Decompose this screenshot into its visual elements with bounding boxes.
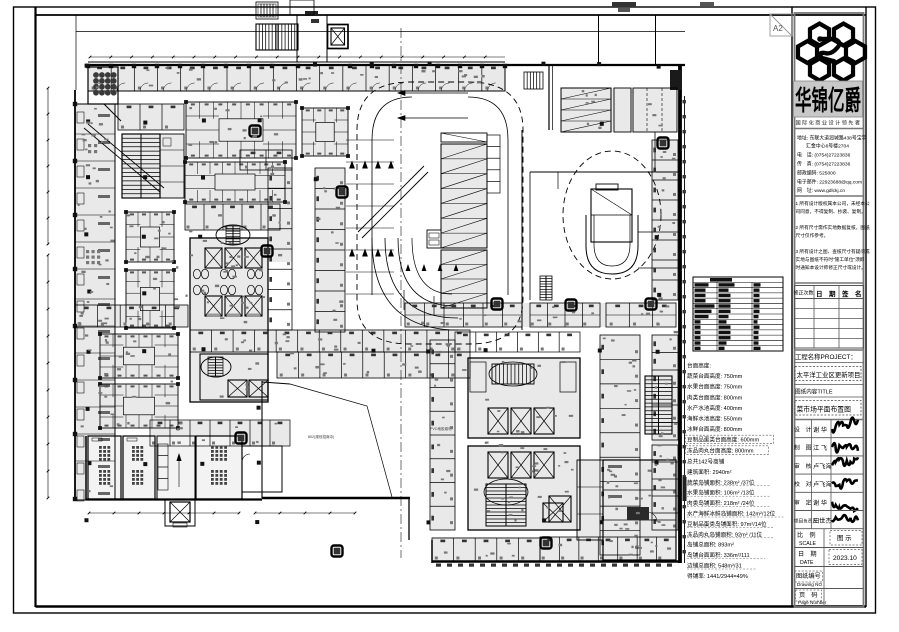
svg-text:海鲜水池高度: 550mm: 海鲜水池高度: 550mm — [687, 415, 743, 423]
svg-text:卢飞海: 卢飞海 — [813, 481, 832, 489]
svg-text:华锦亿爵: 华锦亿爵 — [795, 85, 861, 116]
svg-text:肉类岛铺面积: 218m² /24位: 肉类岛铺面积: 218m² /24位 — [687, 499, 755, 507]
svg-text:得铺率: 1441/2944=49%: 得铺率: 1441/2944=49% — [687, 572, 748, 580]
svg-text:蔬菜台面高度: 750mm: 蔬菜台面高度: 750mm — [687, 372, 743, 380]
svg-text:菜市场平面布置图: 菜市场平面布置图 — [797, 405, 852, 414]
svg-text:岛铺总面积: 893m²: 岛铺总面积: 893m² — [687, 541, 734, 549]
svg-text:Page Number: Page Number — [798, 600, 827, 605]
svg-text:工程名称PROJECT：: 工程名称PROJECT： — [795, 352, 857, 361]
svg-text:制 图: 制 图 — [794, 444, 812, 452]
svg-text:肉类台面高度: 800mm: 肉类台面高度: 800mm — [687, 393, 743, 401]
svg-text:边铺总面积: 548m²/31: 边铺总面积: 548m²/31 — [687, 562, 742, 570]
svg-text:冻品肉丸台面高度: 800mm: 冻品肉丸台面高度: 800mm — [687, 446, 754, 454]
svg-text:图纸编号: 图纸编号 — [796, 572, 821, 580]
svg-text:802(规划招商中): 802(规划招商中) — [308, 434, 334, 439]
svg-text:江 飞: 江 飞 — [813, 445, 827, 452]
svg-text:豆制品蛋类台面高度: 600mm: 豆制品蛋类台面高度: 600mm — [687, 436, 759, 444]
svg-text:蔬菜岛铺面积: 238m² /37位: 蔬菜岛铺面积: 238m² /37位 — [687, 478, 755, 486]
svg-text:总共142号商铺: 总共142号商铺 — [687, 458, 725, 466]
svg-text:审 核: 审 核 — [794, 462, 812, 470]
svg-text:时通知本设计师修正尺寸或设计。: 时通知本设计师修正尺寸或设计。 — [796, 264, 866, 271]
svg-text:DATE: DATE — [800, 560, 814, 566]
svg-text:卢飞海: 卢飞海 — [813, 462, 832, 470]
svg-text:太平洋工业区更新项目: 太平洋工业区更新项目 — [797, 370, 861, 379]
svg-text:电 话: (0754)27223836: 电 话: (0754)27223836 — [797, 152, 851, 159]
svg-text:邮政编码: 525000: 邮政编码: 525000 — [797, 170, 836, 177]
svg-text:田世杰: 田世杰 — [813, 517, 832, 525]
svg-text:冻品肉丸岛铺面积: 92m² /11位: 冻品肉丸岛铺面积: 92m² /11位 — [687, 530, 763, 538]
svg-text:Drawing NO: Drawing NO — [797, 582, 822, 587]
svg-text:谢 华: 谢 华 — [813, 499, 827, 507]
svg-text:2 所有尺寸需作实地数据复核，图纸: 2 所有尺寸需作实地数据复核，图纸 — [796, 224, 871, 231]
svg-text:水产海鲜冰鲜岛铺面积: 142m²/12位: 水产海鲜冰鲜岛铺面积: 142m²/12位 — [687, 510, 776, 518]
svg-text:台面高度:: 台面高度: — [687, 362, 711, 370]
svg-text:司同意，不得复制、抄袭、复制。: 司同意，不得复制、抄袭、复制。 — [796, 208, 866, 215]
svg-text:SCALE: SCALE — [799, 541, 817, 547]
svg-text:电子邮件: 22923688@qq.com: 电子邮件: 22923688@qq.com — [797, 179, 862, 186]
svg-text:签 名: 签 名 — [841, 289, 862, 298]
svg-text:校 对: 校 对 — [794, 480, 812, 488]
svg-text:谢 华: 谢 华 — [813, 426, 827, 434]
svg-text:网 址: www.gdlckj.cn: 网 址: www.gdlckj.cn — [797, 187, 845, 194]
svg-text:尺寸仅作参考。: 尺寸仅作参考。 — [796, 232, 829, 239]
svg-text:建筑面积: 2940m²: 建筑面积: 2940m² — [687, 468, 732, 476]
svg-text:实地与图纸不符时"施工单位"须即: 实地与图纸不符时"施工单位"须即 — [796, 256, 865, 263]
svg-text:地址: 东联大道润城路438号宝宇: 地址: 东联大道润城路438号宝宇 — [797, 135, 867, 142]
svg-text:设 计: 设 计 — [794, 426, 812, 434]
svg-text:2023.10: 2023.10 — [833, 555, 857, 562]
svg-text:比 例: 比 例 — [797, 531, 816, 539]
svg-text:豆制品蛋类岛铺面积: 97m²/14位: 豆制品蛋类岛铺面积: 97m²/14位 — [687, 520, 767, 528]
svg-text:岛铺台面面积: 336m²/111: 岛铺台面面积: 336m²/111 — [687, 551, 750, 559]
svg-text:A2: A2 — [773, 24, 783, 33]
svg-text:水果岛铺面积: 106m² /13位: 水果岛铺面积: 106m² /13位 — [687, 489, 755, 497]
svg-text:页 码: 页 码 — [799, 591, 818, 599]
svg-text:1 所有设计版权属本公司，未经本公: 1 所有设计版权属本公司，未经本公 — [796, 200, 871, 207]
svg-text:冰鲜台面高度: 800mm: 冰鲜台面高度: 800mm — [687, 425, 743, 433]
svg-text:3 所有设计之图、查核尺寸有疑问或: 3 所有设计之图、查核尺寸有疑问或 — [796, 248, 871, 255]
svg-text:传 真: (0754)27223836: 传 真: (0754)27223836 — [797, 161, 851, 168]
svg-text:水产水池高度: 400mm: 水产水池高度: 400mm — [687, 404, 743, 412]
svg-text:日 期: 日 期 — [798, 550, 817, 558]
svg-text:图纸内容TITLE: 图纸内容TITLE — [795, 388, 833, 396]
svg-text:汇金中心6号楼2704: 汇金中心6号楼2704 — [806, 143, 849, 150]
svg-text:水果台面高度: 750mm: 水果台面高度: 750mm — [687, 383, 743, 391]
svg-text:国际化商业设计领先者: 国际化商业设计领先者 — [796, 119, 862, 127]
svg-text:图 示: 图 示 — [837, 534, 852, 542]
svg-text:审 定: 审 定 — [794, 498, 812, 506]
svg-text:日 期: 日 期 — [816, 289, 836, 298]
svg-text:修正次数: 修正次数 — [794, 290, 814, 297]
svg-text:PVC地胶卷材: PVC地胶卷材 — [430, 426, 452, 431]
